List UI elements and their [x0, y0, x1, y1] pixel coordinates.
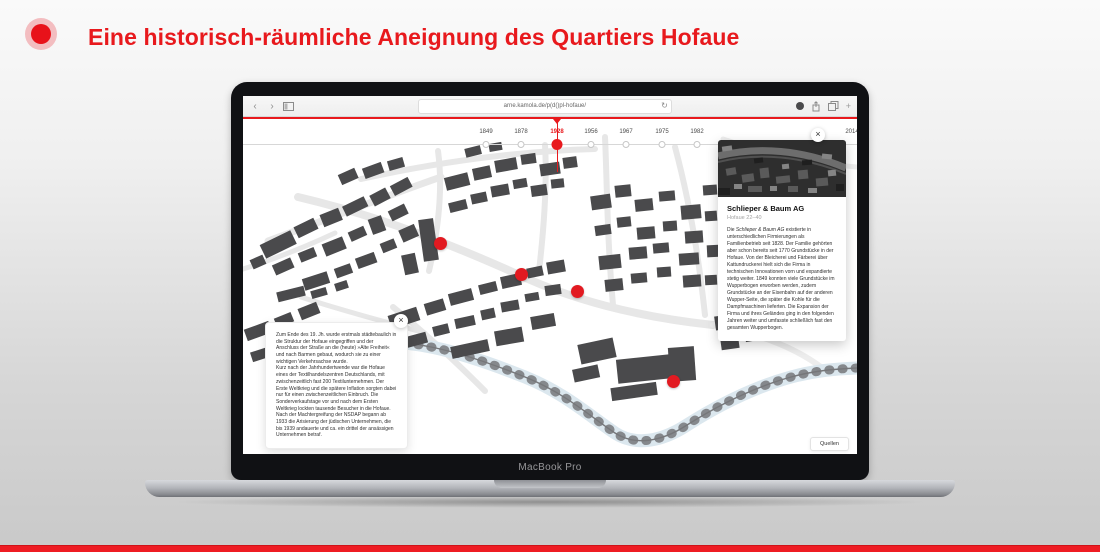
laptop-shadow [170, 496, 930, 508]
historical-photo [718, 140, 846, 197]
sidebar-toggle-icon[interactable] [283, 102, 294, 111]
footer-accent-stripe [0, 545, 1100, 552]
info-paragraph: Zum Ende des 19. Jh. wurde erstmals städ… [276, 332, 397, 365]
extension-icon[interactable] [796, 102, 804, 110]
page-title: Eine historisch-räumliche Aneignung des … [88, 24, 739, 51]
map-marker[interactable] [515, 268, 528, 281]
url-field[interactable]: arne.kamola.de/p(d()pl-hofaue/ ↻ [418, 99, 672, 114]
laptop-screen: ‹ › arne.kamola.de/p(d()pl-hofaue/ ↻ + [231, 82, 869, 480]
sources-button[interactable]: Quellen [810, 437, 849, 451]
share-icon[interactable] [811, 101, 821, 112]
laptop-notch [494, 480, 606, 488]
info-box-close-button[interactable]: × [394, 314, 408, 328]
laptop-base [145, 480, 955, 497]
url-text: arne.kamola.de/p(d()pl-hofaue/ [504, 103, 586, 109]
tabs-icon[interactable] [828, 101, 839, 111]
map-marker[interactable] [667, 375, 680, 388]
browser-toolbar: ‹ › arne.kamola.de/p(d()pl-hofaue/ ↻ + [243, 96, 857, 117]
back-button[interactable]: ‹ [249, 100, 261, 113]
map-marker[interactable] [571, 285, 584, 298]
macbook-label: MacBook Pro [231, 462, 869, 473]
refresh-icon[interactable]: ↻ [661, 101, 668, 110]
building-detail-panel: Schlieper & Baum AG Hofaue 22–40 Die Sch… [718, 140, 846, 341]
info-paragraph: Kurz nach der Jahrhundertwende war die H… [276, 365, 397, 412]
selected-year-pointer-icon [553, 119, 561, 124]
panel-subtitle: Hofaue 22–40 [727, 215, 837, 221]
panel-close-button[interactable]: × [811, 128, 825, 142]
site-logo-icon [25, 18, 57, 50]
panel-body-text: Die Schlieper & Baum AG existierte in un… [727, 227, 837, 332]
browser-window: ‹ › arne.kamola.de/p(d()pl-hofaue/ ↻ + [243, 96, 857, 454]
history-info-box: Zum Ende des 19. Jh. wurde erstmals städ… [265, 322, 408, 449]
map-marker[interactable] [434, 237, 447, 250]
forward-button[interactable]: › [266, 100, 278, 113]
info-paragraph: Nach der Machtergreifung der NSDAP began… [276, 412, 397, 439]
site-header: Eine historisch-räumliche Aneignung des … [0, 0, 1100, 70]
new-tab-button[interactable]: + [846, 101, 851, 111]
panel-title: Schlieper & Baum AG [727, 204, 837, 213]
